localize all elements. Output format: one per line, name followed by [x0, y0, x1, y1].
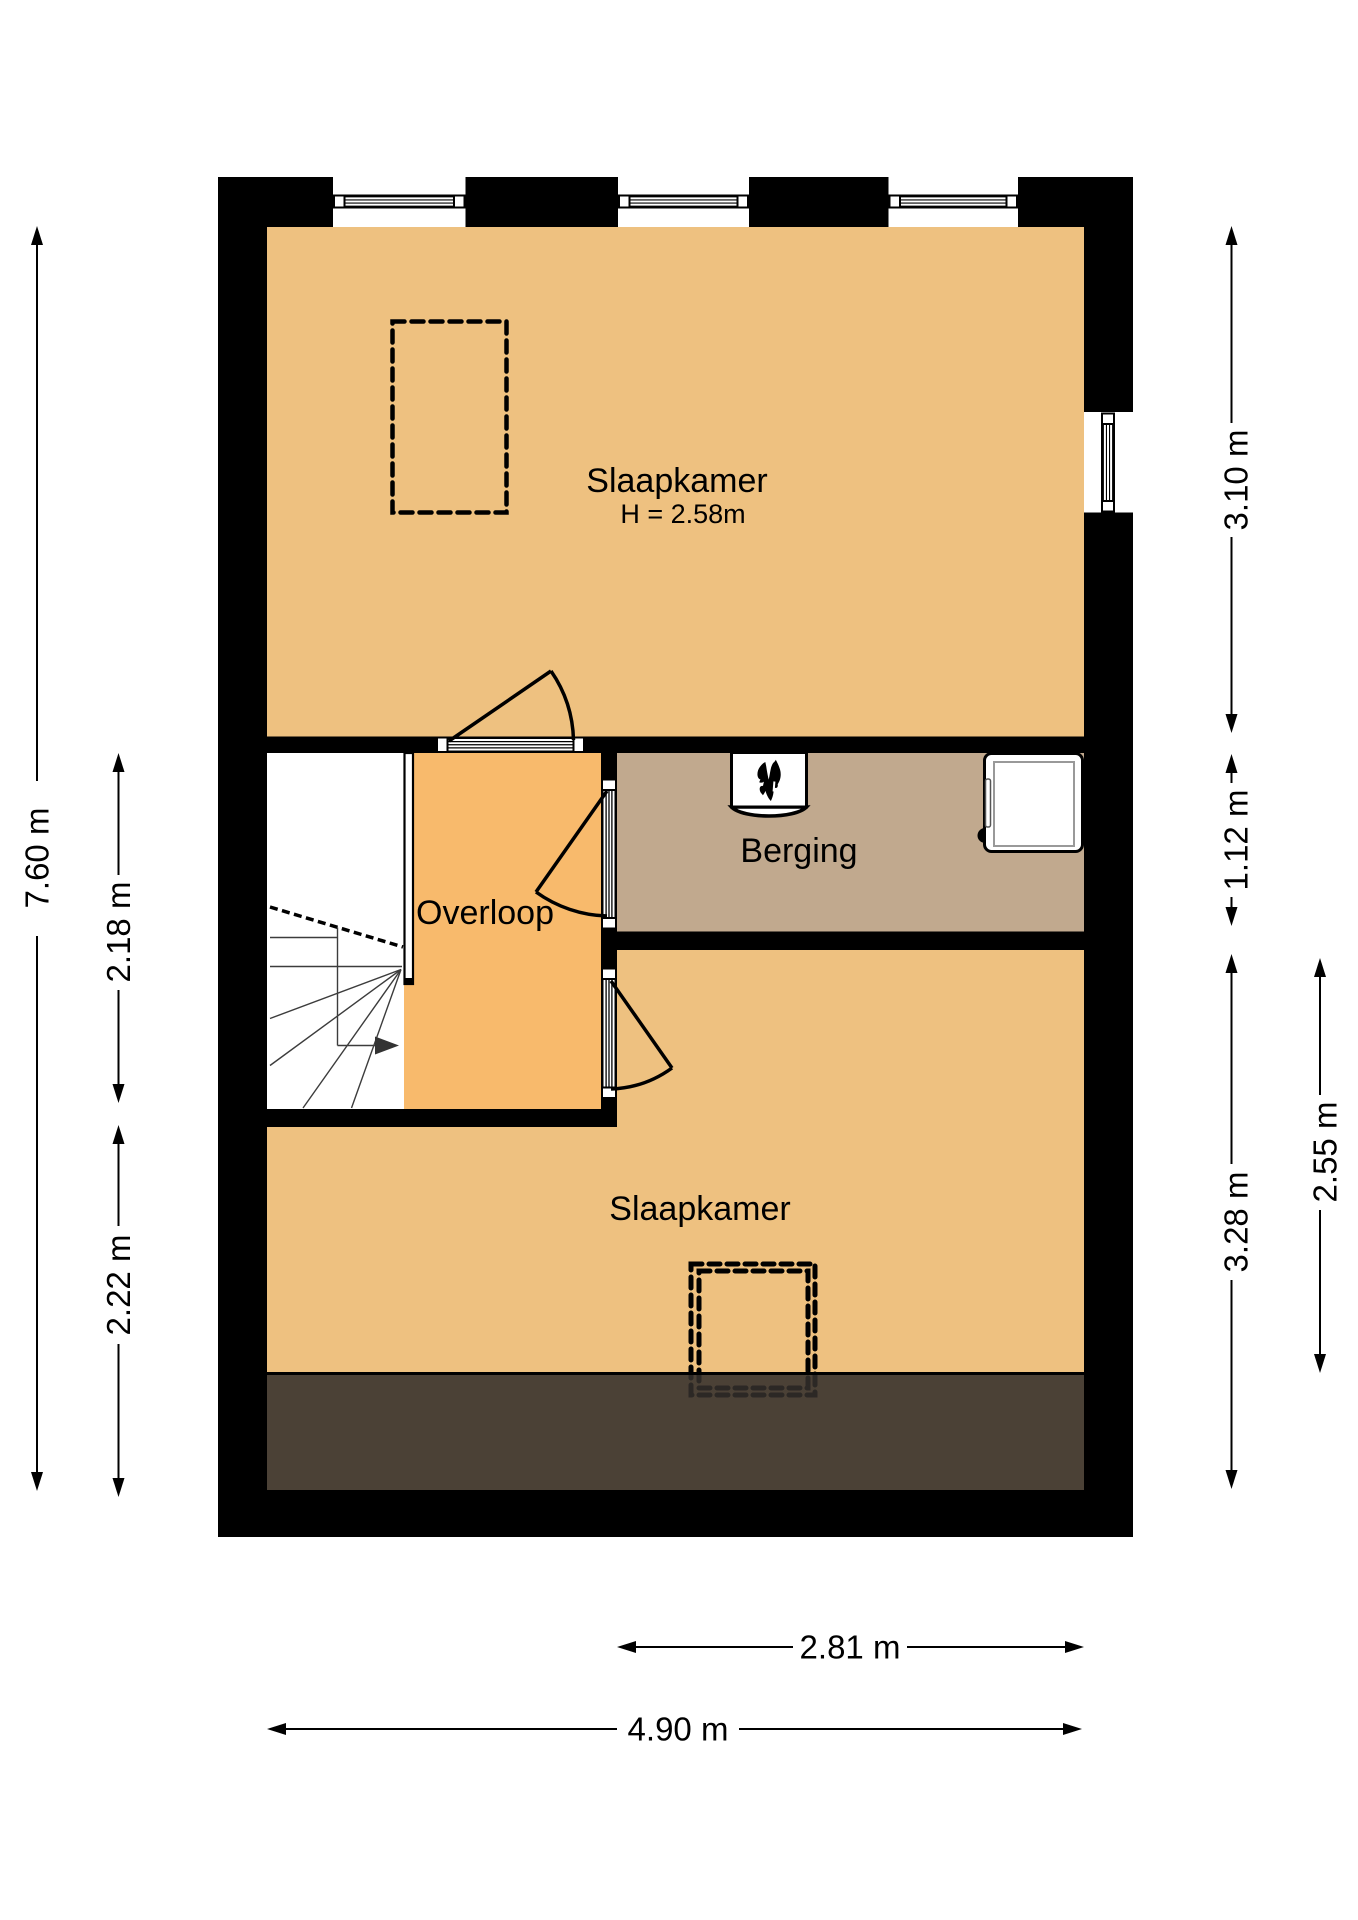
svg-text:2.18 m: 2.18 m [100, 882, 137, 983]
svg-text:2.22 m: 2.22 m [100, 1235, 137, 1336]
svg-text:1.12 m: 1.12 m [1218, 790, 1255, 891]
svg-text:Overloop: Overloop [416, 894, 554, 932]
svg-text:3.10 m: 3.10 m [1218, 430, 1255, 531]
svg-text:4.90 m: 4.90 m [628, 1711, 729, 1748]
svg-text:Slaapkamer: Slaapkamer [586, 462, 767, 500]
svg-text:2.81 m: 2.81 m [800, 1629, 901, 1666]
svg-text:2.55 m: 2.55 m [1307, 1102, 1344, 1203]
svg-text:H = 2.58m: H = 2.58m [620, 499, 745, 529]
svg-text:Berging: Berging [740, 832, 857, 870]
svg-text:Slaapkamer: Slaapkamer [609, 1190, 790, 1228]
svg-text:3.28 m: 3.28 m [1218, 1172, 1255, 1273]
svg-text:7.60 m: 7.60 m [19, 808, 56, 909]
